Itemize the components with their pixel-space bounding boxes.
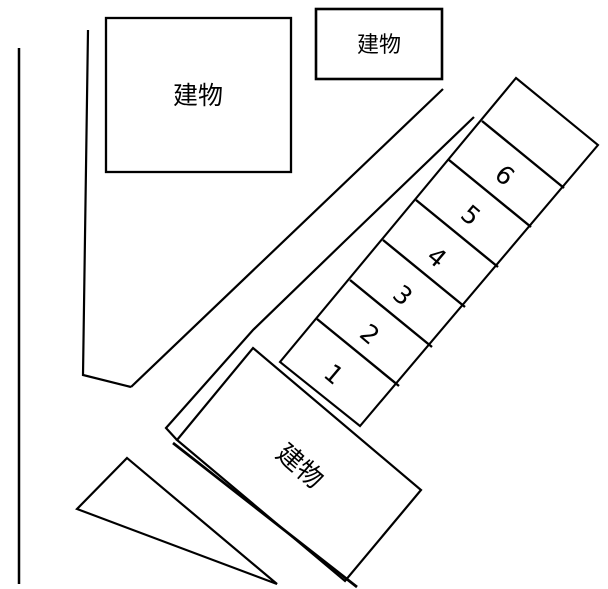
building-top-left-label: 建物 [173, 81, 223, 110]
parking-lot-diagram: 建物 建物 1 2 3 4 5 6 建物 [0, 0, 608, 589]
road-edge-lower-line [166, 117, 474, 440]
parking-space-label-3: 3 [387, 279, 418, 311]
building-top-label: 建物 [357, 33, 401, 58]
parking-space-label-1: 1 [318, 358, 349, 390]
building-bottom-double-edge [173, 443, 357, 587]
triangle-island-outline [77, 458, 277, 584]
parking-space-label-4: 4 [421, 241, 452, 273]
site-plan-canvas: 建物 建物 1 2 3 4 5 6 建物 [0, 0, 608, 589]
building-bottom-label: 建物 [270, 438, 329, 495]
parking-space-label-5: 5 [455, 199, 486, 231]
parking-space-label-2: 2 [354, 318, 385, 350]
parking-space-label-6: 6 [489, 159, 520, 191]
road-edge-upper-line [131, 89, 443, 387]
